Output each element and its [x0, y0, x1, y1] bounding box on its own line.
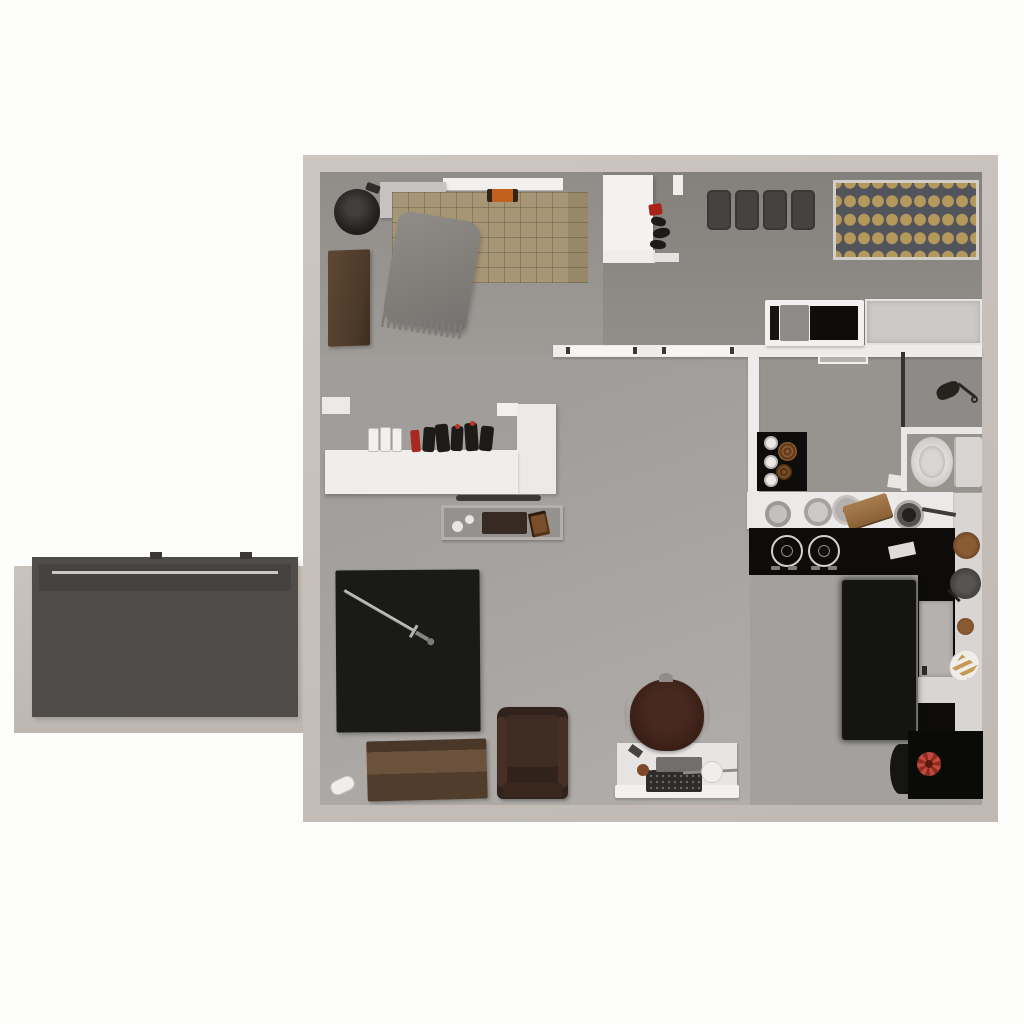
appliance-handle — [922, 666, 927, 675]
door-threshold — [566, 346, 638, 356]
daybed-pillow — [780, 305, 809, 341]
office-chair-arm — [701, 697, 710, 731]
bath-shelf — [818, 355, 868, 364]
stove-knob — [771, 566, 780, 570]
typewriter-carriage — [656, 757, 702, 772]
towel-roll — [764, 455, 778, 469]
kitchen-stool — [953, 532, 980, 559]
entry-closet — [603, 175, 653, 258]
pot — [804, 498, 832, 526]
stove-knob — [788, 566, 797, 570]
wicker-basket — [776, 464, 792, 480]
frying-pan-center — [902, 508, 916, 522]
throw-blanket — [382, 210, 482, 334]
stove-burner — [808, 535, 840, 567]
red-bottle — [410, 430, 421, 453]
door-stop — [633, 347, 637, 354]
foyer-wall — [603, 250, 655, 263]
armchair-cushion — [505, 715, 560, 767]
red-jacket — [648, 203, 662, 216]
flower-center — [925, 760, 933, 768]
daybed-rail — [770, 306, 779, 340]
door-threshold — [662, 346, 735, 356]
desk-plate — [701, 761, 723, 783]
dining-stool — [735, 190, 759, 230]
dining-stool — [763, 190, 787, 230]
armchair-arm — [497, 717, 507, 787]
dresser — [865, 299, 982, 345]
toilet-seat — [919, 446, 945, 478]
gold-canister-rack — [833, 180, 979, 260]
staircase-post — [150, 552, 162, 559]
toilet-tank — [954, 437, 982, 487]
armchair — [497, 707, 568, 799]
white-cup — [380, 427, 391, 452]
counter-gap — [918, 677, 955, 703]
staircase-railing — [52, 571, 278, 574]
staircase-treads — [39, 591, 291, 710]
gold-canisters — [836, 183, 976, 257]
bottle-cap — [470, 421, 475, 426]
towel-roll — [764, 436, 778, 450]
bar-counter — [325, 450, 518, 494]
wood-knob — [957, 618, 974, 635]
stove-knob — [811, 566, 820, 570]
floorplan-render — [0, 0, 1024, 1024]
dark-bottle — [422, 427, 436, 453]
wall-pier — [673, 175, 683, 195]
dark-bottle — [464, 423, 479, 452]
wall-stub — [322, 397, 350, 414]
foyer-threshold — [653, 253, 679, 262]
round-pouf — [334, 189, 380, 235]
white-cup — [368, 428, 379, 452]
dark-bottle — [479, 425, 495, 451]
burner-ring — [818, 545, 830, 557]
bar-counter — [517, 404, 556, 494]
wardrobe — [328, 249, 370, 346]
white-ball — [452, 521, 463, 532]
bottle-cap — [455, 424, 460, 429]
dark-bottle — [450, 426, 463, 452]
office-chair-headrest — [659, 673, 673, 682]
tray-board — [482, 512, 527, 534]
stove-burner — [771, 535, 803, 567]
armchair-seat — [503, 783, 562, 797]
door-stop — [662, 347, 666, 354]
shower-glass-panel — [901, 352, 905, 430]
door-stop — [730, 347, 734, 354]
door-stop — [566, 347, 570, 354]
orange-pillow — [487, 189, 518, 202]
wicker-basket — [778, 442, 797, 461]
bed-edge — [568, 192, 588, 283]
tissue-box — [887, 474, 905, 489]
white-cup — [392, 428, 402, 452]
shower-fixture-head — [971, 396, 978, 403]
daybed — [765, 300, 864, 346]
office-chair — [630, 679, 704, 751]
pastries — [952, 654, 977, 679]
bar-counter-step — [497, 403, 518, 416]
book — [528, 510, 551, 537]
kitchen-rug — [842, 580, 916, 740]
bath-half-wall — [901, 427, 982, 434]
counter-edge-strip — [456, 495, 541, 501]
staircase-landing — [39, 564, 291, 591]
desk-bowl — [637, 764, 649, 776]
kitchen-aisle — [953, 493, 982, 740]
pot — [765, 501, 791, 527]
dining-stool — [791, 190, 815, 230]
storage-chest — [366, 738, 488, 801]
dining-stool — [707, 190, 731, 230]
staircase-post — [240, 552, 252, 559]
office-chair-arm — [624, 697, 633, 731]
burner-ring — [781, 545, 793, 557]
stove-knob — [828, 566, 837, 570]
tray-table — [441, 505, 563, 540]
daybed-mattress — [810, 306, 858, 340]
dark-bottle — [435, 423, 451, 452]
corner-chair — [890, 744, 910, 794]
armchair-arm — [558, 717, 568, 787]
white-ball — [465, 515, 474, 524]
